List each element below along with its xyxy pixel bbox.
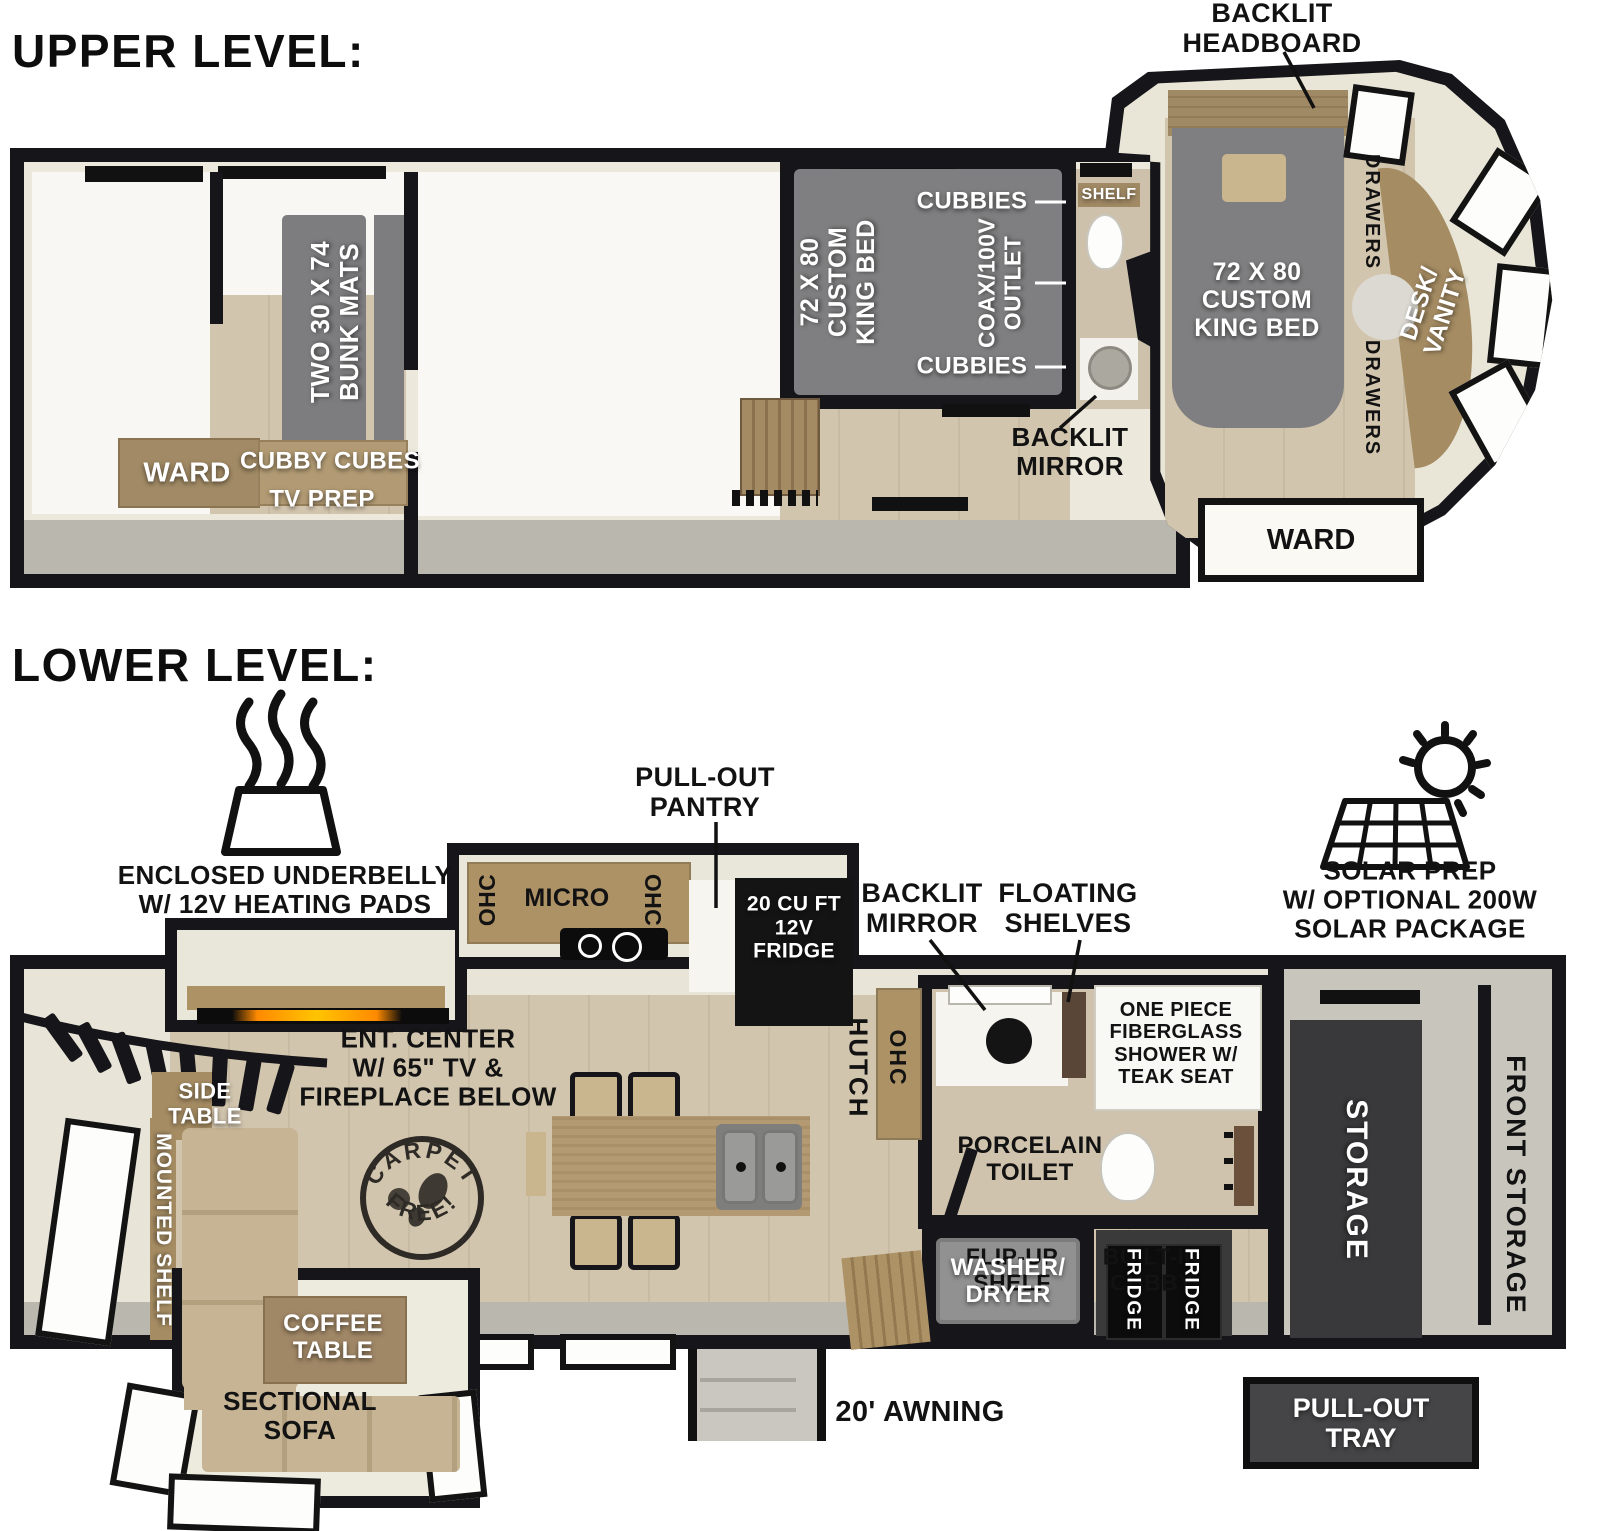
window <box>1487 263 1557 369</box>
mid-king-bed-label: 72 X 80 CUSTOM KING BED <box>796 215 880 350</box>
roof-vent <box>85 166 203 182</box>
solar-prep-label: SOLAR PREP W/ OPTIONAL 200W SOLAR PACKAG… <box>1240 856 1580 943</box>
sectional-sofa-label: SECTIONAL SOFA <box>200 1387 400 1445</box>
loft-railing <box>740 398 820 496</box>
front-storage-label: FRONT STORAGE <box>1501 1055 1531 1315</box>
wall <box>210 172 223 324</box>
sink <box>1088 346 1132 390</box>
front-king-bed-label: 72 X 80 CUSTOM KING BED <box>1190 258 1325 342</box>
floating-shelves <box>1062 992 1086 1078</box>
backlit-mirror-strip <box>948 985 1052 1005</box>
fridge-12v-label: 20 CU FT 12V FRIDGE <box>742 893 847 964</box>
burner <box>578 934 602 958</box>
ohc-hutch-label: OHC <box>884 1029 910 1086</box>
coax-outlet-label: COAX/100V OUTLET <box>974 218 1026 348</box>
tv-prep-label: TV PREP <box>257 487 387 514</box>
ent-center-label: ENT. CENTER W/ 65" TV & FIREPLACE BELOW <box>288 1024 568 1111</box>
drawers-top-label: DRAWERS <box>1361 154 1383 270</box>
dining-bench <box>526 1132 546 1196</box>
roof-vent <box>218 166 386 179</box>
step-line <box>700 1408 796 1412</box>
cubby-peg <box>1224 1184 1233 1190</box>
heating-pads-icon <box>205 688 360 860</box>
built-in-cubby-shelves <box>1234 1126 1254 1206</box>
shelf-label: SHELF <box>1074 186 1144 204</box>
cubbies-top-label: CUBBIES <box>915 189 1030 216</box>
wall <box>1478 985 1491 1325</box>
pantry <box>689 880 735 992</box>
washer-dryer-label: WASHER/ DRYER <box>938 1255 1078 1309</box>
ohc-left-label: OHC <box>475 874 501 926</box>
coffee-table-label: COFFEE TABLE <box>268 1311 398 1365</box>
backlit-headboard-label: BACKLIT HEADBOARD <box>1137 0 1407 58</box>
dining-chair <box>570 1214 622 1270</box>
sink-drain <box>736 1162 746 1172</box>
pillow <box>1222 154 1286 202</box>
porcelain-toilet-label: PORCELAIN TOILET <box>945 1133 1115 1187</box>
hutch-label: HUTCH <box>843 1018 872 1119</box>
side-table-label: SIDE TABLE <box>150 1079 260 1128</box>
vessel-sink <box>986 1018 1032 1064</box>
ohc-right-label: OHC <box>639 874 665 926</box>
fridge-a-label: FRIDGE <box>1122 1248 1143 1332</box>
upper-plan: TWO 30 X 74 BUNK MATS WARD CUBBY CUBES T… <box>0 0 1600 600</box>
front-ward: WARD <box>1198 498 1424 582</box>
roof-vent <box>1080 163 1132 177</box>
front-bedroom: 72 X 80 CUSTOM KING BED DRAWERS DESK/ VA… <box>1100 58 1560 558</box>
cubby-peg <box>1224 1132 1233 1138</box>
cubby-cubes-label: CUBBY CUBES <box>238 449 423 476</box>
lower-level-title: LOWER LEVEL: <box>12 638 378 692</box>
bunk-mats-label: TWO 30 X 74 BUNK MATS <box>306 230 364 415</box>
dining-chair <box>628 1214 680 1270</box>
wall <box>404 172 418 370</box>
built-in-cubby-label: BUILT-IN CUBBY <box>1077 1244 1227 1296</box>
loft-open-area <box>418 172 782 516</box>
tv-prep-mark <box>942 404 1030 417</box>
step-line <box>700 1378 796 1382</box>
sink-drain <box>776 1162 786 1172</box>
mounted-shelf-label: MOUNTED SHELF <box>151 1133 175 1327</box>
solar-prep-icon <box>1295 715 1500 877</box>
floorplan-diagram: UPPER LEVEL: LOWER LEVEL: TWO 30 X 74 BU… <box>0 0 1600 1531</box>
awning-label: 20' AWNING <box>790 1396 1050 1428</box>
upper-walkway <box>24 520 1176 574</box>
front-ward-label: WARD <box>1267 524 1356 557</box>
ward-left-label: WARD <box>127 456 247 487</box>
fridge-b-label: FRIDGE <box>1180 1248 1201 1332</box>
upper-level-title: UPPER LEVEL: <box>12 24 365 78</box>
entry-door <box>841 1250 930 1350</box>
storage-label: STORAGE <box>1339 1099 1373 1261</box>
pull-out-pantry-label: PULL-OUT PANTRY <box>590 762 820 822</box>
shower-label: ONE PIECE FIBERGLASS SHOWER W/ TEAK SEAT <box>1099 999 1254 1089</box>
loft-stair-comb <box>732 490 818 506</box>
toilet <box>1086 214 1124 270</box>
backlit-mirror-upper-label: BACKLIT MIRROR <box>983 423 1158 481</box>
micro-label: MICRO <box>507 884 627 912</box>
burner <box>612 932 642 962</box>
wall <box>1268 969 1284 1335</box>
window <box>560 1334 676 1370</box>
drawers-bottom-label: DRAWERS <box>1361 340 1383 456</box>
cubbies-bottom-label: CUBBIES <box>915 354 1030 381</box>
cubby-peg <box>1224 1158 1233 1164</box>
carpet-free-stamp: CARPET FREE! <box>357 1133 487 1263</box>
fireplace-flame <box>232 1010 402 1021</box>
lower-plan: STORAGE FRONT STORAGE ENT. CENTER W/ 65"… <box>0 900 1600 1531</box>
pull-out-tray-label: PULL-OUT TRAY <box>1293 1393 1429 1453</box>
underbelly-label: ENCLOSED UNDERBELLY W/ 12V HEATING PADS <box>105 861 465 919</box>
floating-shelves-label: FLOATING SHELVES <box>978 878 1158 938</box>
window <box>167 1473 321 1531</box>
roof-vent <box>1320 990 1420 1004</box>
pull-out-tray: PULL-OUT TRAY <box>1243 1377 1479 1469</box>
tv-prep-mark <box>872 497 968 511</box>
